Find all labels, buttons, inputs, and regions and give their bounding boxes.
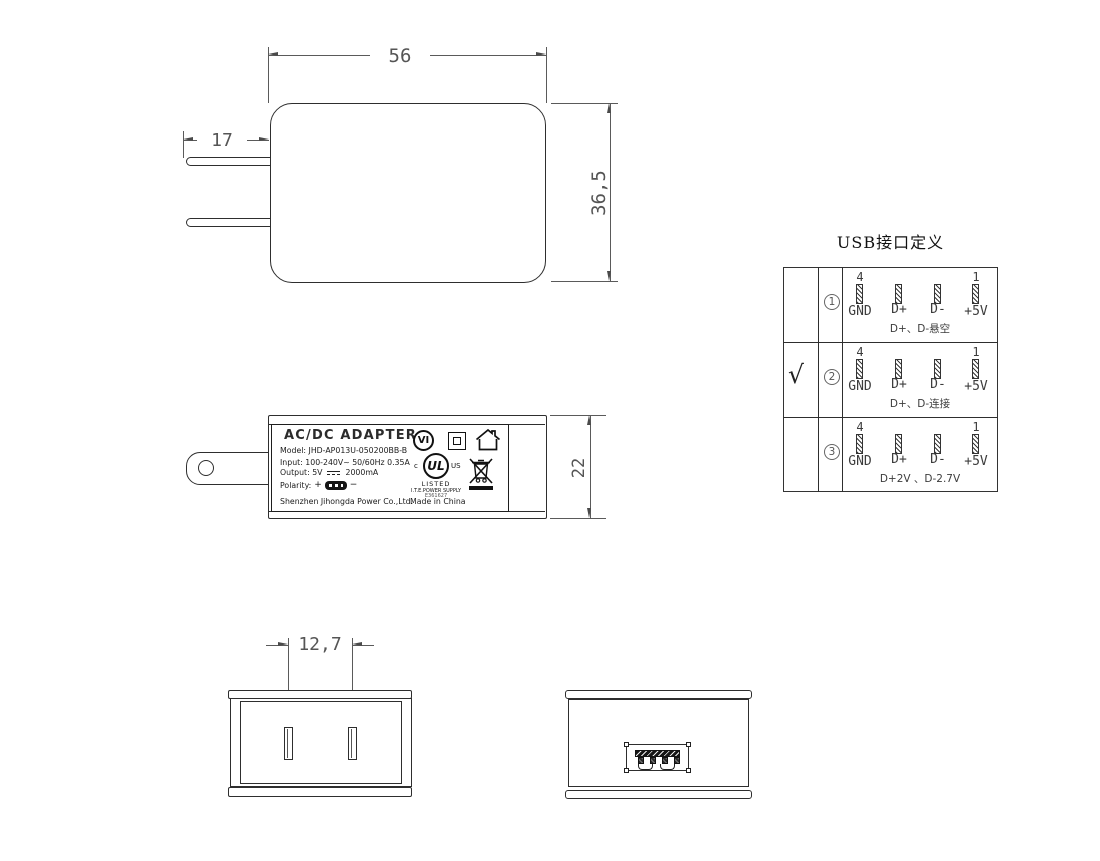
efficiency-vi-text: VI [418, 435, 429, 446]
plug-blade-bottom [186, 218, 272, 227]
usb-contact [650, 757, 656, 764]
dim-height-line [610, 103, 611, 281]
table-row-divider-2 [783, 417, 998, 418]
pin-label-gnd: GND [843, 454, 877, 469]
blade-slot-right [348, 727, 357, 760]
table-row-divider-1 [783, 342, 998, 343]
pin-number-1: 1 [969, 270, 983, 284]
pin-label-dminus: D- [924, 302, 952, 317]
pin-label-5v: +5V [959, 379, 993, 394]
usb-retention-tab [638, 764, 653, 770]
pin-label-gnd: GND [843, 379, 877, 394]
pin-symbol-dminus [934, 359, 941, 379]
usb-contact [638, 757, 644, 764]
pin-label-5v: +5V [959, 454, 993, 469]
dim-arrow-right-icon [259, 137, 269, 141]
usb-contact [662, 757, 668, 764]
usb-connector-icon [325, 481, 347, 490]
ul-file-number: E361627 [406, 493, 466, 499]
pin-symbol-dplus [895, 284, 902, 304]
face-panel [240, 701, 402, 784]
rating-label: AC/DC ADAPTER Model: JHD-AP013U-050200BB… [271, 424, 509, 512]
dim-thickness-extension-top [550, 415, 606, 416]
row-note: D+2V 、D-2.7V [842, 471, 998, 486]
pin-symbol-gnd [856, 284, 863, 304]
pin-symbol-dplus [895, 359, 902, 379]
pin-number-4: 4 [853, 345, 867, 359]
usb-contact [674, 757, 680, 764]
dim-thickness-value: 22 [569, 448, 589, 488]
pin-symbol-dminus [934, 284, 941, 304]
pin-symbol-dplus [895, 434, 902, 454]
pin-symbol-dminus [934, 434, 941, 454]
row-note: D+、D-悬空 [842, 321, 998, 336]
class2-inner-square [453, 437, 461, 445]
pin-number-1: 1 [969, 420, 983, 434]
case-edge-bottom [228, 787, 412, 797]
usb-port-corner-notch [686, 742, 691, 747]
case-body [568, 699, 749, 787]
adapter-technical-drawing: 56 17 36,5 AC/DC ADAPTER Model: JHD-AP01… [0, 0, 1100, 861]
dim-width-extension-right [546, 47, 547, 103]
pin-number-4: 4 [853, 270, 867, 284]
label-polarity: Polarity: + − [280, 480, 357, 490]
usb-table-title: USB接口定义 [783, 229, 998, 253]
plug-blade-top [186, 157, 272, 166]
case-edge-bottom [565, 790, 752, 799]
pin-label-gnd: GND [843, 304, 877, 319]
dim-thickness-line [590, 415, 591, 518]
dim-arrow-up-icon [607, 103, 611, 113]
usb-port-corner-notch [624, 768, 629, 773]
pin-symbol-5v [972, 359, 979, 379]
usb-tongue [635, 750, 680, 757]
case-edge-top [565, 690, 752, 699]
pin-label-dplus: D+ [885, 302, 913, 317]
dim-width-value: 56 [370, 45, 430, 67]
dim-arrow-down-icon [607, 271, 611, 281]
polarity-minus: − [350, 480, 358, 490]
weee-crossed-bin-icon [469, 458, 493, 484]
dim-arrow-up-icon [587, 415, 591, 425]
dim-pitch-value: 12,7 [290, 634, 350, 655]
dim-arrow-left-icon [183, 137, 193, 141]
dim-height-value: 36,5 [588, 163, 610, 223]
label-input: Input: 100-240V~ 50/60Hz 0.35A [280, 458, 410, 468]
table-column-divider-1 [818, 267, 819, 492]
dim-arrow-right-icon [278, 642, 288, 646]
label-polarity-text: Polarity: [280, 481, 311, 490]
row-number-circle: 2 [824, 369, 840, 385]
ul-mark-icon: UL [423, 453, 449, 479]
label-title: AC/DC ADAPTER [284, 428, 414, 443]
dim-thickness-extension-bottom [550, 518, 606, 519]
ul-c-text: c [414, 462, 418, 470]
dim-prong-extension [183, 131, 184, 158]
pin-number-1: 1 [969, 345, 983, 359]
efficiency-vi-icon: VI [413, 430, 434, 451]
ul-letters: UL [427, 459, 444, 473]
adapter-body-front [270, 103, 546, 283]
pin-symbol-gnd [856, 359, 863, 379]
pin-label-dplus: D+ [885, 452, 913, 467]
dim-prong-value: 17 [197, 130, 247, 151]
pin-label-dminus: D- [924, 452, 952, 467]
usb-retention-tab [660, 764, 675, 770]
pin-label-dminus: D- [924, 377, 952, 392]
dim-arrow-down-icon [587, 508, 591, 518]
dim-arrow-left-icon [352, 642, 362, 646]
pin-label-5v: +5V [959, 304, 993, 319]
row-note: D+、D-连接 [842, 396, 998, 411]
row-number-circle: 1 [824, 294, 840, 310]
pin-number-4: 4 [853, 420, 867, 434]
ul-us-text: US [451, 462, 461, 470]
usb-port-corner-notch [686, 768, 691, 773]
usb-port-corner-notch [624, 742, 629, 747]
label-model: Model: JHD-AP013U-050200BB-B [280, 446, 407, 456]
label-output: Output: 5V2000mA [280, 468, 378, 477]
indoor-use-house-icon [475, 429, 501, 451]
label-output-prefix: Output: 5V [280, 468, 322, 477]
label-output-suffix: 2000mA [345, 468, 378, 477]
dc-symbol-icon [327, 471, 340, 479]
weee-bar [469, 486, 493, 491]
class2-double-square-icon [448, 432, 466, 450]
dim-height-extension-bottom [551, 281, 618, 282]
dim-arrow-right-icon [536, 52, 546, 56]
row-check: √ [788, 360, 804, 389]
dim-arrow-left-icon [268, 52, 278, 56]
pin-symbol-gnd [856, 434, 863, 454]
polarity-plus: + [314, 480, 322, 490]
blade-hole [198, 460, 214, 476]
row-number-circle: 3 [824, 444, 840, 460]
label-manufacturer: Shenzhen Jihongda Power Co.,Ltd. [280, 497, 413, 507]
pin-label-dplus: D+ [885, 377, 913, 392]
blade-slot-left [284, 727, 293, 760]
pin-symbol-5v [972, 434, 979, 454]
pin-symbol-5v [972, 284, 979, 304]
